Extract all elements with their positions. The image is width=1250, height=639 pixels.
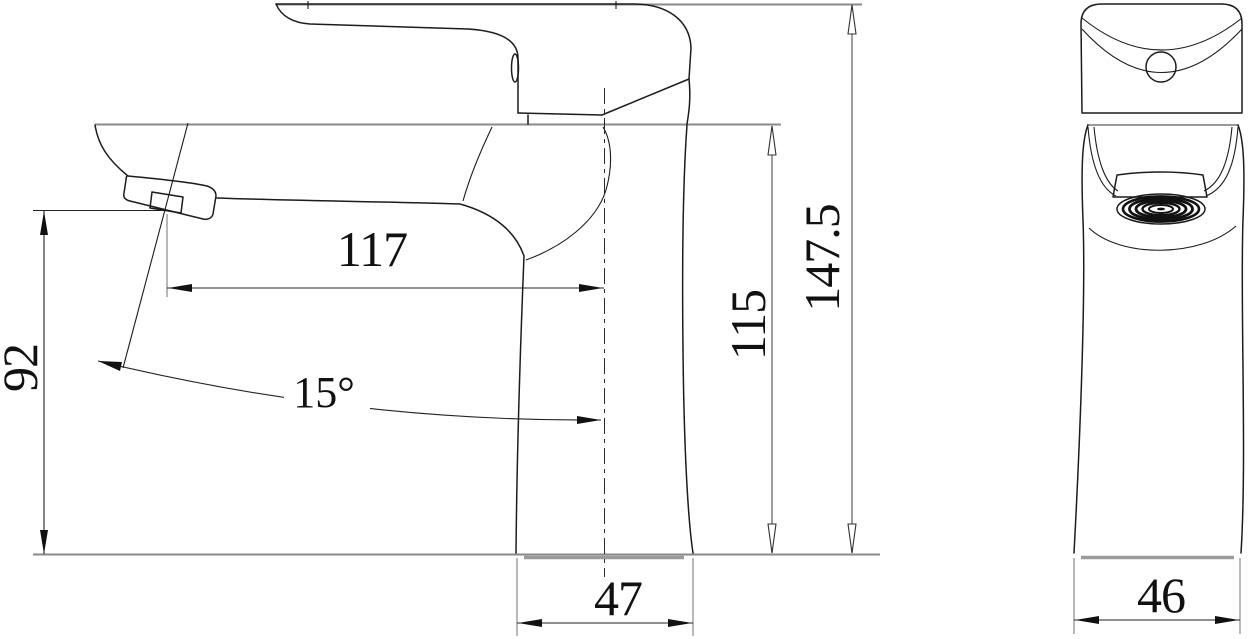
side-handle-lever xyxy=(276,4,691,124)
arrow-down-hollow-icon xyxy=(768,524,776,553)
dimension-spray-angle: 15° xyxy=(98,361,601,424)
front-handle-outline xyxy=(1081,4,1242,113)
body-right-edge xyxy=(683,125,693,553)
reference-lines xyxy=(33,1,1234,558)
front-aerator-housing xyxy=(1113,172,1207,197)
outlet-height-label: 92 xyxy=(0,344,48,392)
front-arch-right-outer xyxy=(1206,127,1238,196)
arrow-up-hollow-icon xyxy=(848,5,856,34)
arrow-up-icon xyxy=(40,211,48,235)
arrow-right-icon xyxy=(577,416,601,424)
base-depth-label: 47 xyxy=(594,570,642,626)
arrow-down-hollow-icon xyxy=(848,524,856,553)
arrow-up-hollow-icon xyxy=(768,126,776,155)
front-arch-right-inner xyxy=(1204,127,1232,191)
front-body-left-edge xyxy=(1074,125,1088,553)
front-handle-swoosh-upper xyxy=(1082,18,1242,50)
handle-underside-edge xyxy=(276,4,518,113)
front-handle xyxy=(1081,4,1242,113)
spray-axis-line xyxy=(123,123,188,368)
dimension-overall-height: 147.5 xyxy=(794,5,856,553)
spout-nozzle xyxy=(124,176,216,220)
front-view xyxy=(1074,4,1244,553)
spout-reach-label: 117 xyxy=(337,221,407,277)
base-width-label: 46 xyxy=(1137,567,1185,623)
body-blend-curve-left xyxy=(463,127,492,201)
dimension-base-width: 46 xyxy=(1074,558,1240,634)
arrow-left-icon xyxy=(518,619,542,627)
arrow-left-icon xyxy=(168,284,192,292)
front-body-right-edge xyxy=(1238,125,1244,553)
spray-angle-label: 15° xyxy=(293,368,355,417)
dimension-outlet-height: 92 xyxy=(0,211,165,555)
arrow-right-icon xyxy=(579,284,603,292)
body-blend-curve-right xyxy=(526,127,611,260)
body-height-label: 115 xyxy=(720,290,776,360)
front-body xyxy=(1074,125,1244,553)
faucet-technical-drawing: 92 117 15° 115 147.5 47 xyxy=(0,0,1250,639)
arrow-upleft-icon xyxy=(98,361,122,371)
front-handle-swoosh-lower xyxy=(1082,29,1242,73)
technical-drawing-canvas: 92 117 15° 115 147.5 47 xyxy=(0,0,1250,639)
front-arch-left-inner xyxy=(1094,127,1118,191)
spout-front-curve xyxy=(95,125,128,176)
arrow-right-icon xyxy=(668,619,692,627)
handle-base-bottom xyxy=(518,79,689,115)
overall-height-label: 147.5 xyxy=(794,204,850,312)
front-handle-button xyxy=(1146,52,1176,82)
handle-base-front xyxy=(687,79,690,124)
arrow-left-icon xyxy=(1075,616,1099,624)
dimension-body-height: 115 xyxy=(720,126,776,553)
arrow-down-icon xyxy=(40,530,48,554)
front-recess-curve xyxy=(1089,226,1236,250)
side-body xyxy=(95,125,693,553)
front-aerator xyxy=(1117,194,1205,224)
handle-top-edge xyxy=(276,4,691,79)
arrow-right-icon xyxy=(1215,616,1239,624)
dimension-base-depth: 47 xyxy=(517,558,693,636)
